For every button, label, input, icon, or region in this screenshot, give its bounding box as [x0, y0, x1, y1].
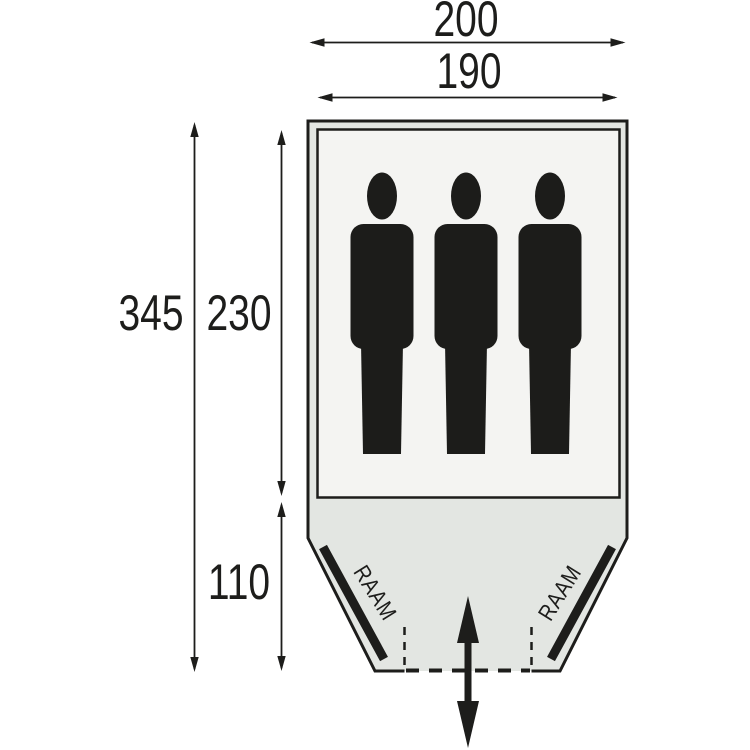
floorplan-drawing: [0, 0, 750, 750]
arrowhead-up-icon: [277, 502, 285, 517]
arrowhead-left-icon: [318, 93, 333, 101]
dim-label-outer-width: 200: [433, 0, 498, 44]
arrowhead-down-icon: [277, 656, 285, 671]
entrance-arrowhead-down-icon: [457, 701, 479, 748]
arrowhead-left-icon: [310, 38, 325, 46]
dim-label-cabin-depth: 230: [206, 288, 271, 338]
tent-floorplan-diagram: 200 190 345 230 110 RAAM RAAM: [0, 0, 750, 750]
arrowhead-down-icon: [277, 481, 285, 496]
dim-arrow-porch-depth: [277, 502, 285, 671]
arrowhead-down-icon: [190, 657, 198, 672]
dim-arrow-total-depth: [190, 122, 198, 672]
arrowhead-up-icon: [190, 122, 198, 137]
dim-label-inner-width: 190: [436, 46, 501, 96]
dim-label-total-depth: 345: [118, 288, 183, 338]
arrowhead-up-icon: [277, 130, 285, 145]
occupants-group: [351, 173, 582, 455]
dim-arrow-cabin-depth: [277, 130, 285, 496]
arrowhead-right-icon: [603, 93, 618, 101]
dim-label-porch-depth: 110: [208, 557, 270, 607]
arrowhead-right-icon: [611, 38, 626, 46]
